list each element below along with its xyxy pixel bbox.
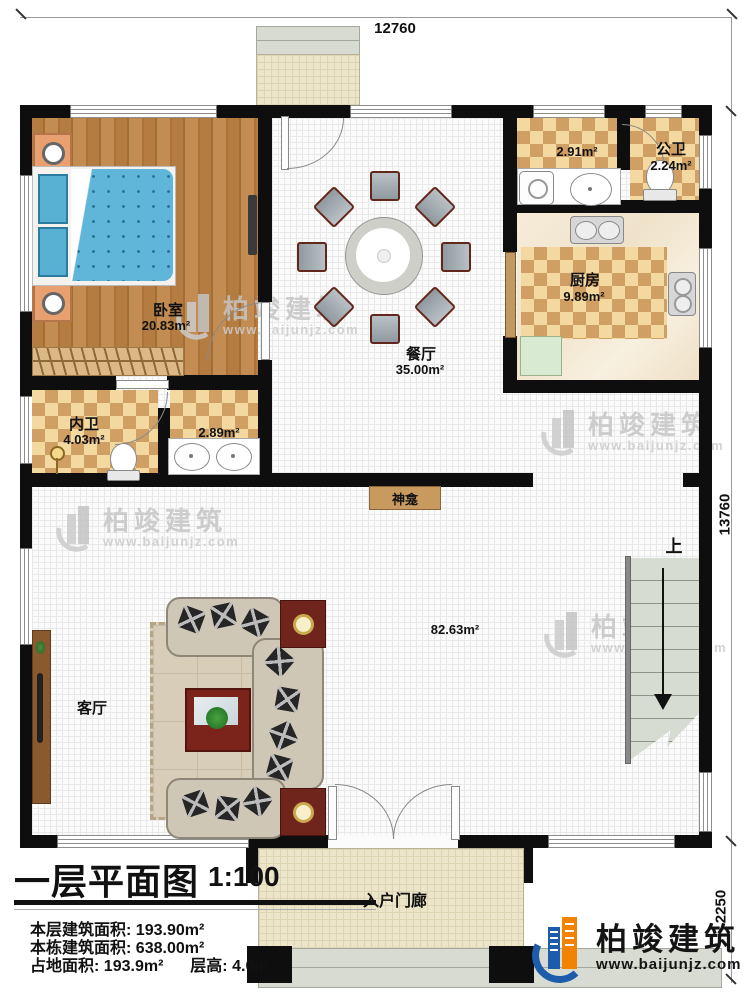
room-label-ensuite: 内卫 <box>44 416 124 433</box>
wall-segment <box>683 473 712 487</box>
room-area-public-bath: 2.24m² <box>631 159 711 173</box>
floor-plan-sheet: 12760 13760 2250 柏竣建筑 www.baijunjz.com 柏… <box>0 0 750 993</box>
room-area-hall: 82.63m² <box>415 623 495 637</box>
sink-basin <box>575 221 597 240</box>
sofa-pillow <box>274 686 301 713</box>
plant-icon <box>206 707 228 729</box>
watermark-logo-icon <box>540 406 580 458</box>
coffee-table <box>185 688 251 752</box>
room-area-laundry: 2.91m² <box>537 145 617 159</box>
arrow-head-icon <box>654 694 672 710</box>
window-symbol <box>645 105 682 118</box>
sink-basin <box>598 221 620 240</box>
sink-symbol <box>570 173 612 206</box>
stairs-up-label: 上 <box>662 538 686 555</box>
bed <box>32 166 176 286</box>
room-area-ensuite: 4.03m² <box>44 433 124 447</box>
stair-railing <box>625 556 631 764</box>
title-underline <box>14 900 376 905</box>
burner-icon <box>674 295 692 313</box>
watermark-website: www.baijunjz.com <box>103 535 239 549</box>
wall-segment <box>20 473 533 487</box>
wall-segment <box>258 118 272 302</box>
lamp-icon <box>293 614 314 635</box>
dining-table <box>345 217 423 295</box>
stove <box>668 272 696 316</box>
bed-pillow <box>38 174 68 224</box>
watermark-company: 柏竣建筑 <box>103 508 239 535</box>
wardrobe <box>32 347 184 376</box>
dimension-right-upper: 13760 <box>717 480 734 550</box>
lamp-icon <box>42 142 65 165</box>
top-dimension-line <box>20 17 732 18</box>
tv-cabinet <box>32 630 51 804</box>
watermark: 柏竣建筑 www.baijunjz.com <box>55 502 239 554</box>
bedroom-tv <box>248 195 257 255</box>
door-leaf <box>505 252 516 338</box>
room-area-dining: 35.00m² <box>380 363 460 377</box>
burner-icon <box>674 278 692 296</box>
dining-chair <box>370 171 400 201</box>
dining-chair <box>370 314 400 344</box>
washing-machine-door <box>528 179 548 199</box>
drain-icon <box>189 454 193 458</box>
room-label-dining: 餐厅 <box>381 346 461 363</box>
window-symbol <box>350 105 452 118</box>
sofa-pillow <box>210 602 237 629</box>
bed-pillow <box>38 227 68 277</box>
watermark-logo-icon <box>543 608 583 660</box>
window-symbol <box>20 396 32 464</box>
washing-machine <box>519 171 554 205</box>
sink-symbol <box>216 443 252 471</box>
door-leaf <box>451 786 460 840</box>
side-table <box>280 788 326 836</box>
wall-segment <box>503 118 517 252</box>
stair-direction-arrow <box>662 568 664 696</box>
watermark-logo-icon <box>55 502 95 554</box>
stat-row: 占地面积: 193.9m² 层高: 4.0m <box>30 952 269 976</box>
shrine: 神龛 <box>369 486 441 510</box>
bed-fold <box>71 169 105 281</box>
plant-icon <box>36 641 45 654</box>
room-area-kitchen: 9.89m² <box>544 290 624 304</box>
drain-icon <box>231 454 235 458</box>
room-label-living: 客厅 <box>52 700 132 717</box>
room-label-bedroom: 卧室 <box>128 302 208 319</box>
wall-segment <box>167 375 272 390</box>
window-symbol <box>699 248 712 348</box>
window-symbol <box>548 835 675 848</box>
sheet-scale: 1:100 <box>208 861 280 893</box>
company-logo: 柏竣建筑 www.baijunjz.com <box>532 913 741 983</box>
kitchen-sink <box>570 216 624 244</box>
side-porch <box>256 54 360 107</box>
stat-label: 占地面积: <box>30 958 99 975</box>
sheet-title: 一层平面图 <box>14 853 199 905</box>
tv-icon <box>37 673 43 743</box>
lamp-icon <box>293 802 314 823</box>
stat-label: 层高: <box>190 958 227 975</box>
nightstand <box>33 283 72 322</box>
dining-chair <box>297 242 327 272</box>
company-logo-icon <box>532 913 588 983</box>
dining-chair <box>441 242 471 272</box>
wall-segment <box>20 375 116 390</box>
toilet-tank <box>107 470 140 481</box>
porch-pillar <box>489 946 534 983</box>
title-thin-line <box>14 909 376 910</box>
lamp-icon <box>42 292 65 315</box>
window-symbol <box>20 175 32 312</box>
window-symbol <box>699 772 712 832</box>
dining-table-center <box>377 249 391 263</box>
room-label-kitchen: 厨房 <box>545 272 625 289</box>
window-symbol <box>20 548 32 645</box>
fridge <box>520 336 562 376</box>
window-symbol <box>70 105 217 118</box>
room-label-public-bath: 公卫 <box>631 141 711 158</box>
window-symbol <box>533 105 605 118</box>
company-website: www.baijunjz.com <box>596 956 741 973</box>
drain-icon <box>588 187 592 191</box>
room-area-vanity: 2.89m² <box>179 426 259 440</box>
room-area-bedroom: 20.83m² <box>126 319 206 333</box>
door-leaf <box>116 380 169 389</box>
wall-segment <box>503 380 712 393</box>
watermark: 柏竣建筑 www.baijunjz.com <box>540 406 724 458</box>
sink-symbol <box>174 443 210 471</box>
stat-value: 4.0m <box>232 958 268 975</box>
side-table <box>280 600 326 648</box>
stat-value: 193.9m² <box>104 958 164 975</box>
sofa-pillow <box>215 796 241 822</box>
floor-drain-icon <box>56 458 58 474</box>
toilet-tank <box>643 189 677 201</box>
company-name: 柏竣建筑 <box>596 923 741 956</box>
